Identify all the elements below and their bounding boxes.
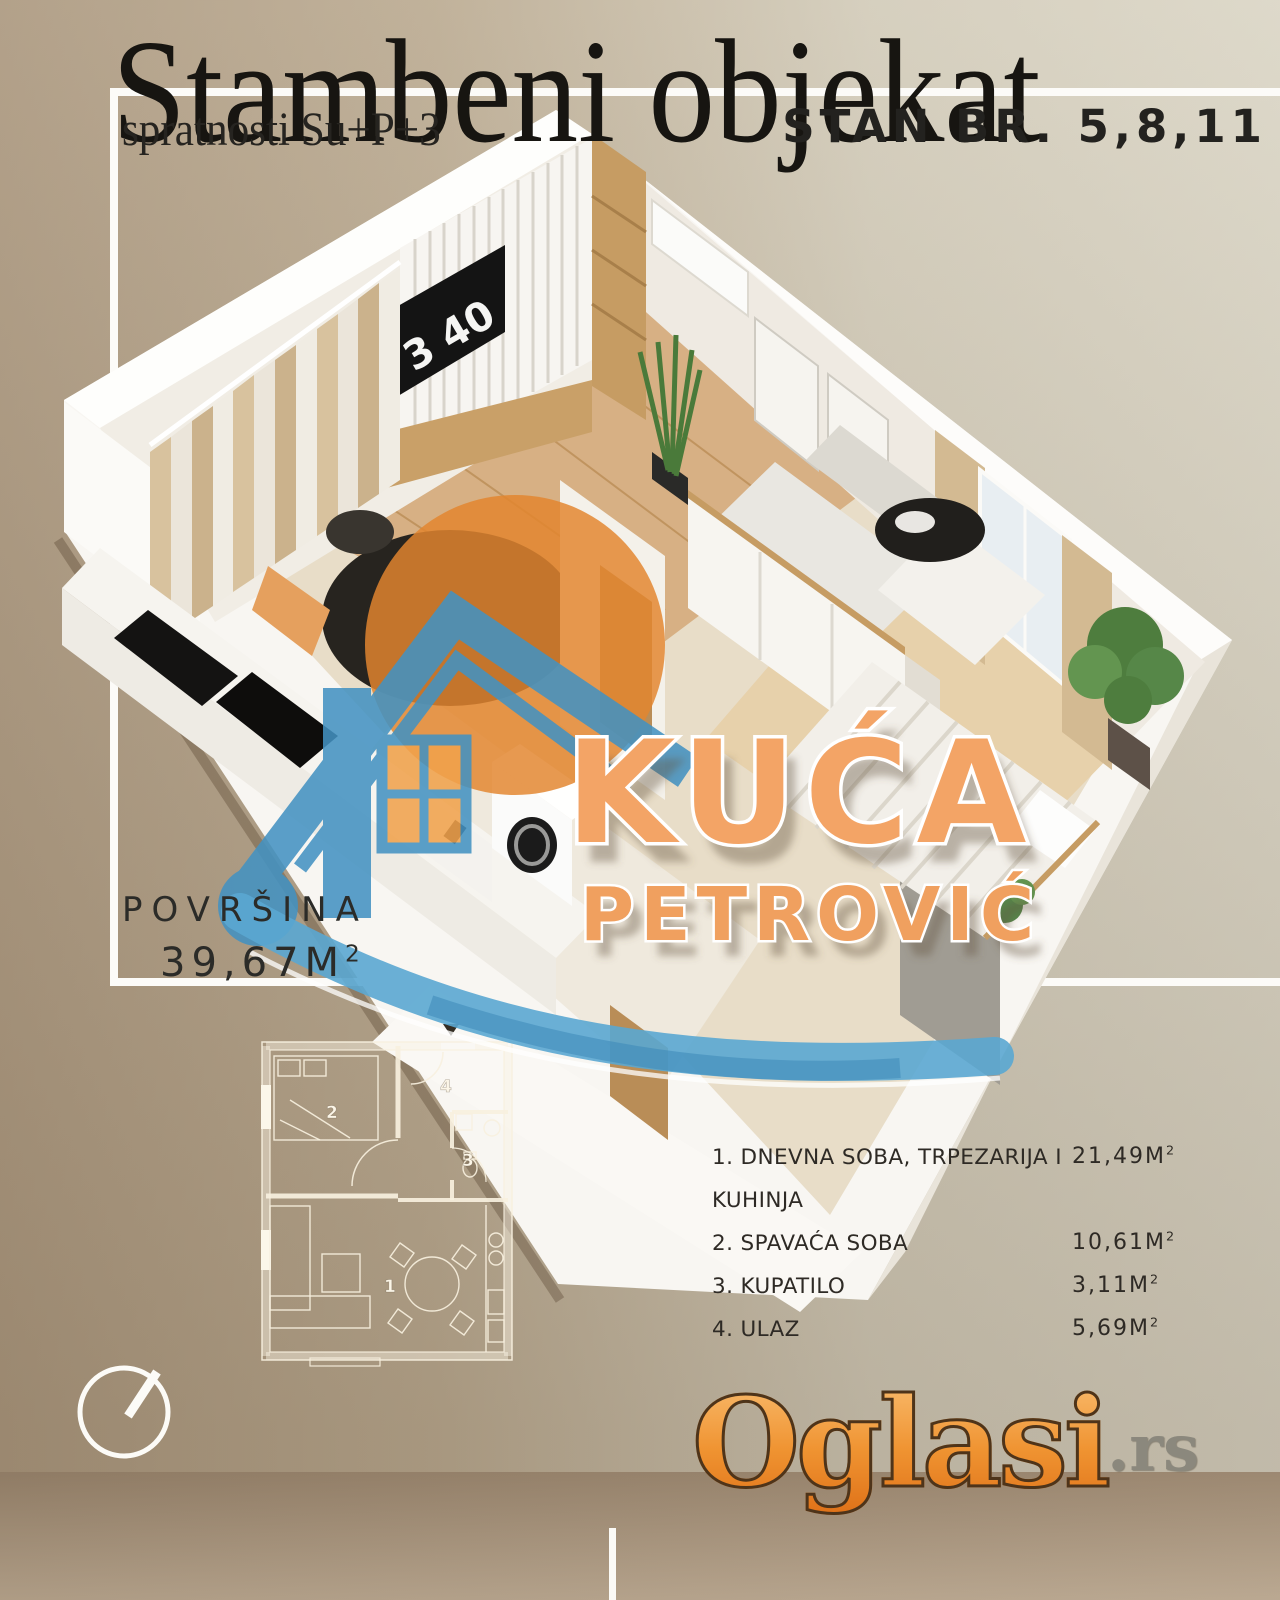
room-area: 3,11M2 xyxy=(1072,1265,1158,1308)
bedroom-door-arc xyxy=(352,1140,398,1186)
svg-text:1: 1 xyxy=(384,1277,396,1297)
svg-text:4: 4 xyxy=(440,1077,452,1097)
area-value-number: 39,67M xyxy=(160,940,345,986)
room-area: 21,49M2 xyxy=(1072,1136,1174,1179)
unit-number: STAN BR. 5,8,11 xyxy=(782,100,1267,153)
oglasi-logo-main: Oglasi xyxy=(692,1371,1107,1516)
room-label: 2. SPAVAĆA SOBA xyxy=(712,1222,1064,1265)
room-area: 10,61M2 xyxy=(1072,1222,1174,1265)
room-label: 3. KUPATILO xyxy=(712,1265,1064,1308)
svg-text:3: 3 xyxy=(462,1151,474,1171)
flyer-artwork: 3 40 xyxy=(0,0,1280,1600)
room-row: 3. KUPATILO 3,11M2 xyxy=(712,1265,1272,1308)
watermark-text: KUĆA KUĆA PETROVIĆ PETROVIĆ xyxy=(566,709,1052,974)
flyer-page: { "header": { "title": "Stambeni objekat… xyxy=(0,0,1280,1600)
area-value: 39,67M2 xyxy=(160,940,360,986)
compass-icon xyxy=(80,1368,168,1456)
room-area: 5,69M2 xyxy=(1072,1308,1158,1351)
area-label: POVRŠINA xyxy=(122,890,368,930)
coffee-table xyxy=(875,498,985,562)
room-label: 1. DNEVNA SOBA, TRPEZARIJA I KUHINJA xyxy=(712,1136,1064,1222)
svg-text:PETROVIĆ: PETROVIĆ xyxy=(580,870,1040,958)
room-row: 2. SPAVAĆA SOBA 10,61M2 xyxy=(712,1222,1272,1265)
room-row: 4. ULAZ 5,69M2 xyxy=(712,1308,1272,1351)
bottom-divider-line xyxy=(609,1528,616,1600)
oglasi-logo-suffix: .rs xyxy=(1107,1411,1199,1486)
svg-text:2: 2 xyxy=(326,1103,338,1123)
dark-chair xyxy=(326,510,394,554)
room-label: 4. ULAZ xyxy=(712,1308,1064,1351)
room-row: 1. DNEVNA SOBA, TRPEZARIJA I KUHINJA 21,… xyxy=(712,1136,1272,1222)
svg-text:KUĆA: KUĆA xyxy=(566,709,1035,876)
page-subtitle: spratnosti Su+P+3 xyxy=(122,102,441,157)
plan-window xyxy=(261,1085,271,1129)
oglasi-logo: Oglasi.rs xyxy=(692,1382,1199,1506)
room-list: 1. DNEVNA SOBA, TRPEZARIJA I KUHINJA 21,… xyxy=(712,1136,1272,1351)
wood-shelf-column xyxy=(592,134,646,420)
area-value-sup: 2 xyxy=(345,941,360,968)
